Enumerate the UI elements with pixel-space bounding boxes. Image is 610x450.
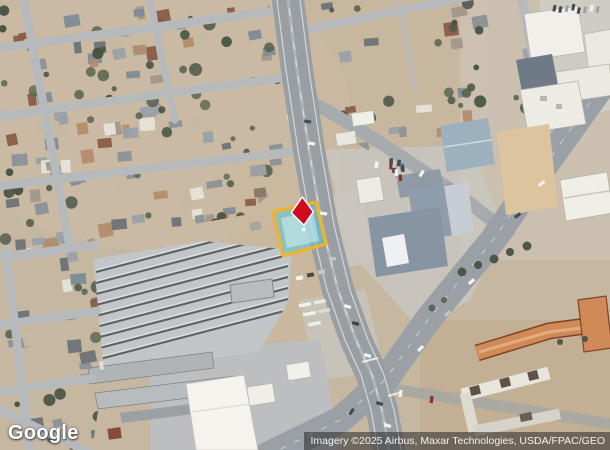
map-canvas[interactable]: Google Imagery ©2025 Airbus, Maxar Techn… <box>0 0 610 450</box>
google-logo[interactable]: Google <box>8 422 79 445</box>
attribution-bar: Imagery ©2025 Airbus, Maxar Technologies… <box>304 432 610 450</box>
attribution-text: Imagery ©2025 Airbus, Maxar Technologies… <box>311 435 605 447</box>
satellite-imagery <box>0 0 610 450</box>
pin-anchor-dot <box>302 228 306 232</box>
